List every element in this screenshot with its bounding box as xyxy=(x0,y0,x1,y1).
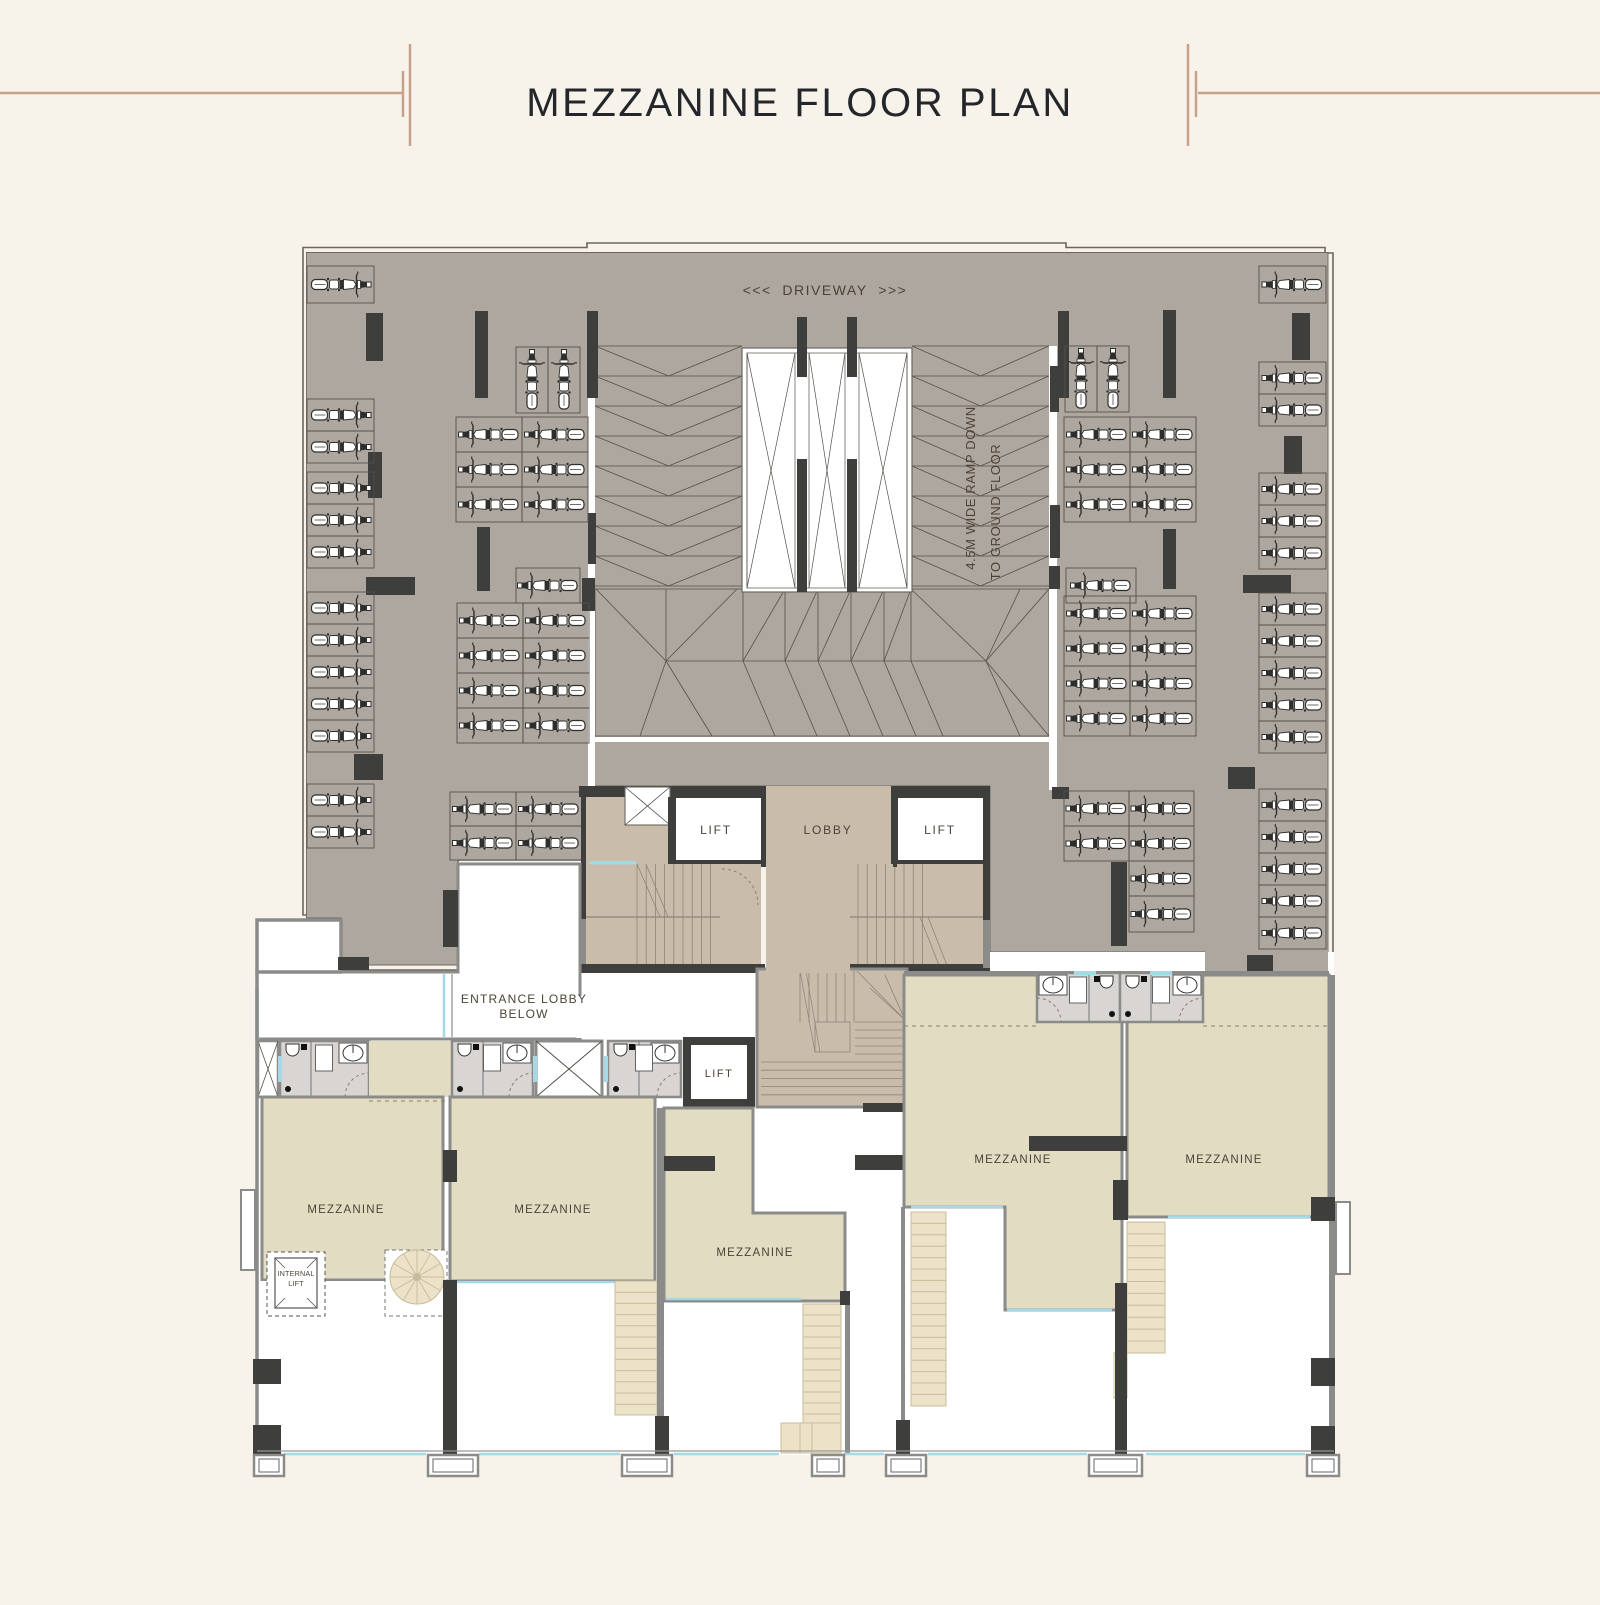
svg-text:MEZZANINE: MEZZANINE xyxy=(974,1154,1051,1166)
svg-text:MEZZANINE: MEZZANINE xyxy=(1185,1154,1262,1166)
svg-text:ENTRANCE LOBBY: ENTRANCE LOBBY xyxy=(461,992,587,1006)
svg-text:MEZZANINE FLOOR PLAN: MEZZANINE FLOOR PLAN xyxy=(526,81,1074,125)
svg-text:LIFT: LIFT xyxy=(700,823,732,837)
svg-text:MEZZANINE: MEZZANINE xyxy=(307,1204,384,1216)
svg-text:LIFT: LIFT xyxy=(924,823,956,837)
svg-text:<<< DRIVEWAY >>>: <<< DRIVEWAY >>> xyxy=(743,282,908,298)
svg-text:MEZZANINE: MEZZANINE xyxy=(716,1247,793,1259)
svg-text:INTERNAL: INTERNAL xyxy=(277,1269,314,1278)
svg-text:LIFT: LIFT xyxy=(288,1279,304,1288)
svg-text:TO GROUND FLOOR: TO GROUND FLOOR xyxy=(988,444,1003,581)
svg-text:4.5M WIDE RAMP DOWN: 4.5M WIDE RAMP DOWN xyxy=(963,406,978,570)
svg-text:LIFT: LIFT xyxy=(705,1068,734,1080)
svg-text:LOBBY: LOBBY xyxy=(803,823,852,837)
svg-text:BELOW: BELOW xyxy=(499,1007,548,1021)
svg-text:MEZZANINE: MEZZANINE xyxy=(514,1204,591,1216)
